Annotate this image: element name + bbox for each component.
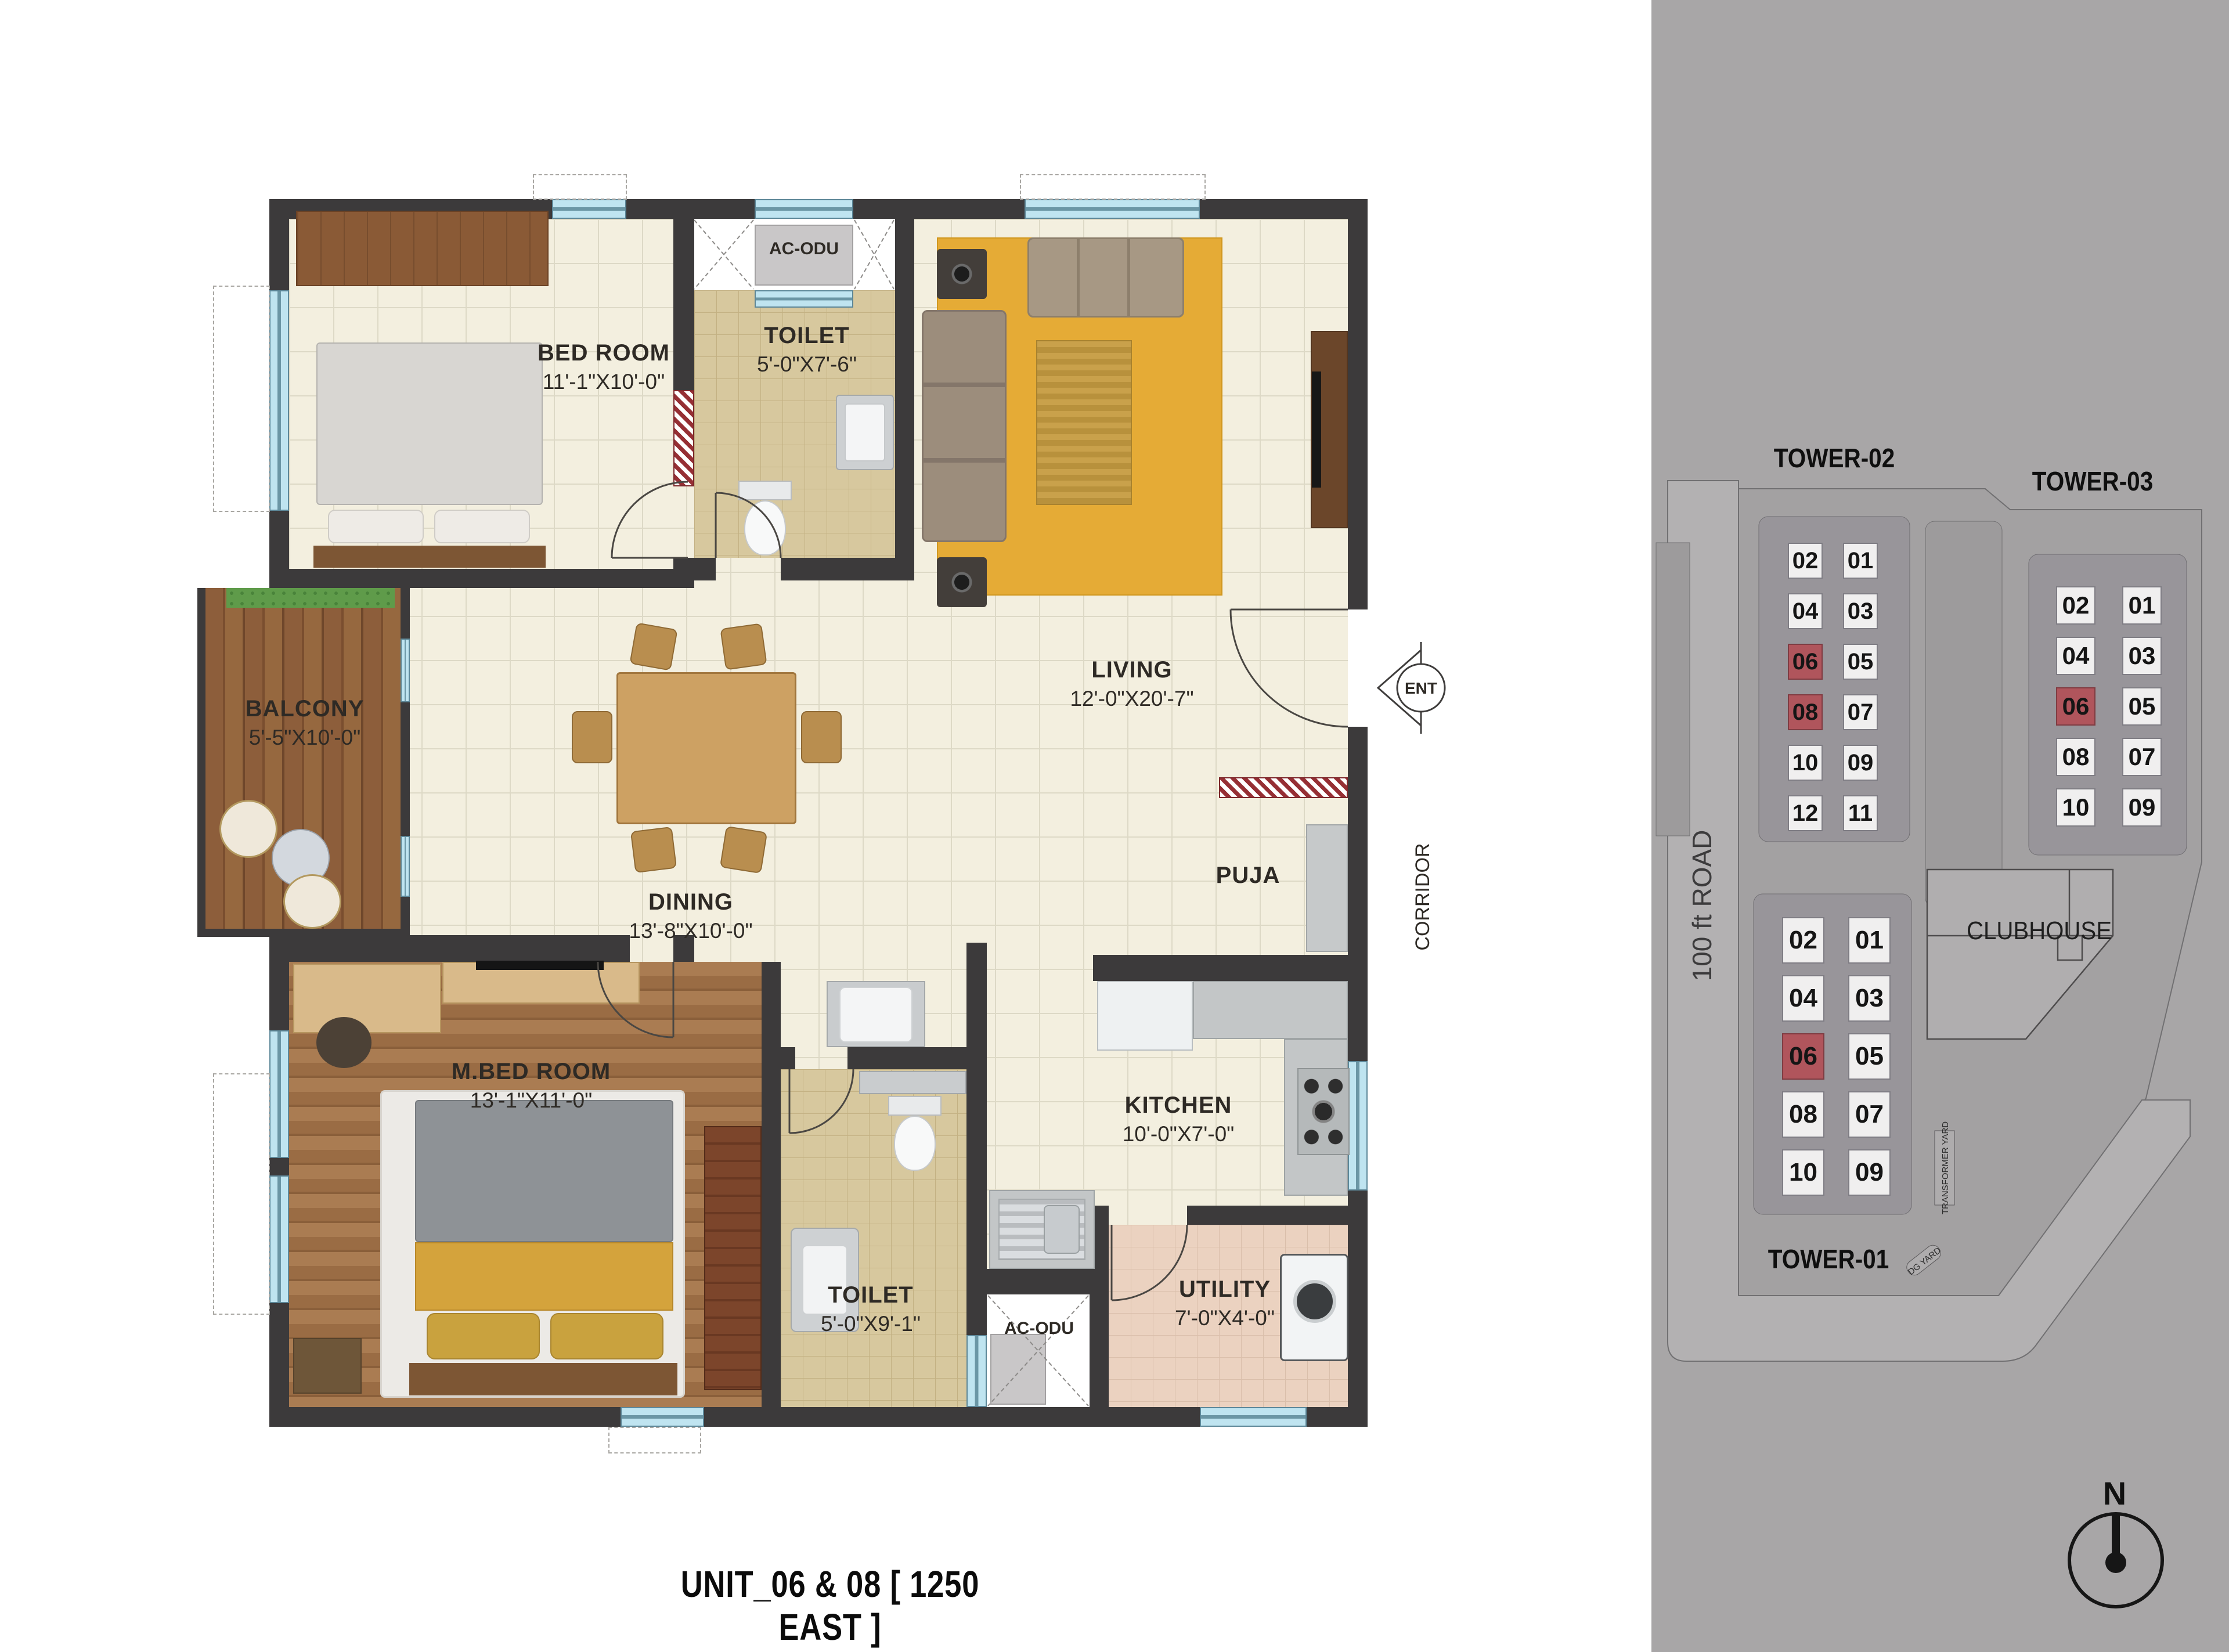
kitchen-name: KITCHEN xyxy=(1080,1090,1277,1120)
label-toilet-bottom: TOILET 5'-0"X9'-1" xyxy=(784,1280,958,1338)
kitchen-hob xyxy=(1297,1068,1350,1155)
window-bedroom-top xyxy=(552,199,626,219)
mbed-name: M.BED ROOM xyxy=(430,1056,633,1087)
unit-tower-02-08: 08 xyxy=(1788,694,1823,730)
bedroom-dims: 11'-1"X10'-0" xyxy=(505,368,702,396)
window-ac-bottom-left xyxy=(966,1335,987,1407)
label-ac-bottom: AC-ODU xyxy=(981,1319,1097,1339)
unit-tower-02-03: 03 xyxy=(1843,593,1878,629)
unit-tower-01-06: 06 xyxy=(1782,1033,1824,1080)
transformer-yard-label: TRANSFORMER YARD xyxy=(1941,1121,1950,1214)
unit-tower-01-07: 07 xyxy=(1848,1091,1891,1138)
unit-tower-01-03: 03 xyxy=(1848,975,1891,1022)
tower-02-header: TOWER-02 xyxy=(1763,442,1906,474)
balcony-chair-2 xyxy=(283,874,341,929)
wall-kitchen-utility xyxy=(1187,1206,1368,1225)
dining-dims: 13'-8"X10'-0" xyxy=(586,917,795,945)
mbed-desk xyxy=(293,964,441,1033)
label-balcony: BALCONY 5'-5"X10'-0" xyxy=(209,694,401,752)
dining-chair-bottom-2 xyxy=(720,826,767,874)
balcony-name: BALCONY xyxy=(209,694,401,724)
wall-below-sink xyxy=(987,1269,1095,1294)
unit-tower-02-04: 04 xyxy=(1788,593,1823,629)
unit-tower-02-06: 06 xyxy=(1788,644,1823,680)
unit-tower-01-08: 08 xyxy=(1782,1091,1824,1138)
dining-chair-right xyxy=(801,711,842,763)
label-corridor: CORRIDOR xyxy=(1412,816,1435,978)
mbed-wardrobe xyxy=(704,1126,762,1390)
wall-passage-right xyxy=(966,943,987,1335)
puja-name: PUJA xyxy=(1196,860,1300,890)
label-kitchen: KITCHEN 10'-0"X7'-0" xyxy=(1080,1090,1277,1148)
window-bedroom-left xyxy=(269,290,289,511)
unit-tower-03-02: 02 xyxy=(2056,586,2095,625)
living-mat xyxy=(1036,340,1132,505)
balcony-planter xyxy=(226,588,395,608)
hatch-toilet-wall xyxy=(673,390,694,486)
window-utility-bottom xyxy=(1200,1407,1307,1427)
wall-right-upper xyxy=(1348,199,1368,609)
hatch-puja-partition xyxy=(1219,777,1348,798)
kitchen-appliance xyxy=(1097,981,1193,1051)
unit-tower-03-10: 10 xyxy=(2056,788,2095,827)
toilet-bottom-name: TOILET xyxy=(784,1280,958,1310)
wall-balcony-left xyxy=(197,588,205,937)
living-speaker-2 xyxy=(937,557,987,607)
tower-03-header: TOWER-03 xyxy=(2021,466,2164,497)
unit-tower-01-04: 04 xyxy=(1782,975,1824,1022)
unit-tower-01-09: 09 xyxy=(1848,1149,1891,1196)
wall-toilet-bottom-b xyxy=(781,558,914,580)
toilet-bottom-dims: 5'-0"X9'-1" xyxy=(784,1310,958,1338)
unit-tower-02-09: 09 xyxy=(1843,745,1878,781)
window-ac-top-outer xyxy=(755,199,853,219)
dining-name: DINING xyxy=(586,887,795,917)
tower-01-units: 02010403060508071009 xyxy=(1782,917,1891,1196)
living-sofa-left xyxy=(922,310,1007,542)
label-living: LIVING 12'-0"X20'-7" xyxy=(1027,655,1236,713)
wall-bedroom-bottom xyxy=(269,569,694,588)
utility-name: UTILITY xyxy=(1123,1274,1326,1304)
toilet-top-wc-bowl xyxy=(744,500,786,556)
label-mbed: M.BED ROOM 13'-1"X11'-0" xyxy=(430,1056,633,1114)
unit-tower-02-01: 01 xyxy=(1843,543,1878,579)
dash-box-bedroom-left xyxy=(213,286,270,512)
page-title: UNIT_06 & 08 [ 1250 EAST ] xyxy=(635,1563,1025,1649)
toiletb-wc-tank xyxy=(888,1096,942,1116)
mbed-pillow-2 xyxy=(550,1313,663,1359)
living-dims: 12'-0"X20'-7" xyxy=(1027,685,1236,713)
tower-01-header: TOWER-01 xyxy=(1757,1243,1900,1275)
unit-tower-03-04: 04 xyxy=(2056,637,2095,675)
unit-tower-03-09: 09 xyxy=(2122,788,2162,827)
window-kitchen-right xyxy=(1348,1061,1368,1191)
dash-box-mbed-bottom xyxy=(608,1427,701,1453)
window-living-top xyxy=(1025,199,1200,219)
living-sofa-top xyxy=(1027,237,1184,318)
mbed-dims: 13'-1"X11'-0" xyxy=(430,1087,633,1114)
unit-tower-03-07: 07 xyxy=(2122,738,2162,776)
wall-toiletb-top-b xyxy=(847,1047,966,1069)
toiletb-wc-bowl xyxy=(894,1116,936,1171)
dash-box-living-top xyxy=(1020,174,1206,200)
dining-chair-top-1 xyxy=(629,622,677,670)
window-ac-top-inner xyxy=(755,290,853,308)
label-dining: DINING 13'-8"X10'-0" xyxy=(586,887,795,945)
mbed-headboard xyxy=(409,1363,677,1395)
living-tv xyxy=(1312,371,1321,488)
ac-odu-unit-bottom xyxy=(990,1334,1046,1405)
toiletb-shelf xyxy=(859,1071,966,1094)
clubhouse-label: CLUBHOUSE xyxy=(1967,917,2112,945)
wall-kitchen-top xyxy=(1093,955,1368,981)
site-pad-middle xyxy=(1925,521,2002,907)
unit-tower-03-01: 01 xyxy=(2122,586,2162,625)
bedroom-wardrobe xyxy=(296,211,549,286)
puja-platform xyxy=(1306,824,1348,952)
living-name: LIVING xyxy=(1027,655,1236,685)
tower-03-units: 02010403060508071009 xyxy=(2056,586,2162,827)
unit-tower-03-06: 06 xyxy=(2056,687,2095,726)
toilet-top-wc-tank xyxy=(738,481,792,500)
toilet-top-basin-bowl xyxy=(845,403,885,461)
unit-tower-01-05: 05 xyxy=(1848,1033,1891,1080)
kitchen-counter-top xyxy=(1193,981,1348,1039)
wall-mbed-right xyxy=(762,962,781,1407)
unit-tower-01-01: 01 xyxy=(1848,917,1891,964)
balcony-dims: 5'-5"X10'-0" xyxy=(209,724,401,752)
dash-box-mbed-left xyxy=(213,1073,270,1315)
wall-toiletb-top-a xyxy=(781,1047,795,1069)
tower-02-units: 020104030605080710091211 xyxy=(1788,543,1878,831)
kitchen-sink-basin xyxy=(1044,1205,1080,1254)
toiletb-vanity-basin xyxy=(839,987,912,1043)
road-label: 100 ft ROAD xyxy=(1687,830,1717,982)
mbed-bed-duvet xyxy=(415,1100,673,1242)
mbed-tv xyxy=(476,961,604,970)
window-mbed-bottom xyxy=(621,1407,704,1427)
dash-box-bedroom-top xyxy=(533,174,627,200)
window-mbed-left-1 xyxy=(269,1030,289,1158)
toilet-top-name: TOILET xyxy=(720,320,894,351)
dining-chair-left xyxy=(572,711,612,763)
label-toilet-top: TOILET 5'-0"X7'-6" xyxy=(720,320,894,378)
balcony-chair-1 xyxy=(219,800,277,858)
site-pad-left xyxy=(1656,543,1690,836)
toilet-top-dims: 5'-0"X7'-6" xyxy=(720,351,894,378)
bedroom-name: BED ROOM xyxy=(505,338,702,368)
label-utility: UTILITY 7'-0"X4'-0" xyxy=(1123,1274,1326,1332)
floorplan-page: BED ROOM 11'-1"X10'-0" TOILET 5'-0"X7'-6… xyxy=(0,0,2229,1652)
dining-chair-top-2 xyxy=(720,623,767,670)
wall-toilet-bottom-a xyxy=(673,558,716,580)
utility-dims: 7'-0"X4'-0" xyxy=(1123,1304,1326,1332)
mbed-pillow-1 xyxy=(427,1313,540,1359)
unit-tower-02-07: 07 xyxy=(1843,694,1878,730)
mbed-floor-mat xyxy=(293,1338,362,1394)
dining-chair-bottom-1 xyxy=(630,827,677,873)
unit-tower-03-03: 03 xyxy=(2122,637,2162,675)
window-balcony-2 xyxy=(401,836,410,897)
label-bedroom: BED ROOM 11'-1"X10'-0" xyxy=(505,338,702,396)
unit-tower-02-10: 10 xyxy=(1788,745,1823,781)
unit-tower-02-11: 11 xyxy=(1843,795,1878,831)
unit-tower-02-12: 12 xyxy=(1788,795,1823,831)
living-speaker-1 xyxy=(937,249,987,299)
north-label: N xyxy=(2103,1475,2126,1512)
unit-tower-01-02: 02 xyxy=(1782,917,1824,964)
mbed-bed-sheet xyxy=(415,1242,673,1311)
unit-tower-02-05: 05 xyxy=(1843,644,1878,680)
label-puja: PUJA xyxy=(1196,860,1300,890)
mbed-chair xyxy=(316,1017,371,1068)
bedroom-pillow-1 xyxy=(328,510,424,543)
label-ent: ENT xyxy=(1398,679,1444,698)
window-mbed-left-2 xyxy=(269,1175,289,1303)
unit-tower-01-10: 10 xyxy=(1782,1149,1824,1196)
window-balcony-1 xyxy=(401,639,410,702)
dining-table xyxy=(616,672,796,824)
unit-tower-03-08: 08 xyxy=(2056,738,2095,776)
unit-tower-02-02: 02 xyxy=(1788,543,1823,579)
kitchen-dims: 10'-0"X7'-0" xyxy=(1080,1120,1277,1148)
wall-toilet-right xyxy=(895,199,914,580)
bedroom-pillow-2 xyxy=(434,510,530,543)
unit-tower-03-05: 05 xyxy=(2122,687,2162,726)
label-ac-top: AC-ODU xyxy=(755,239,853,259)
wall-mbed-top-a xyxy=(269,935,630,962)
bedroom-headboard xyxy=(313,546,546,568)
